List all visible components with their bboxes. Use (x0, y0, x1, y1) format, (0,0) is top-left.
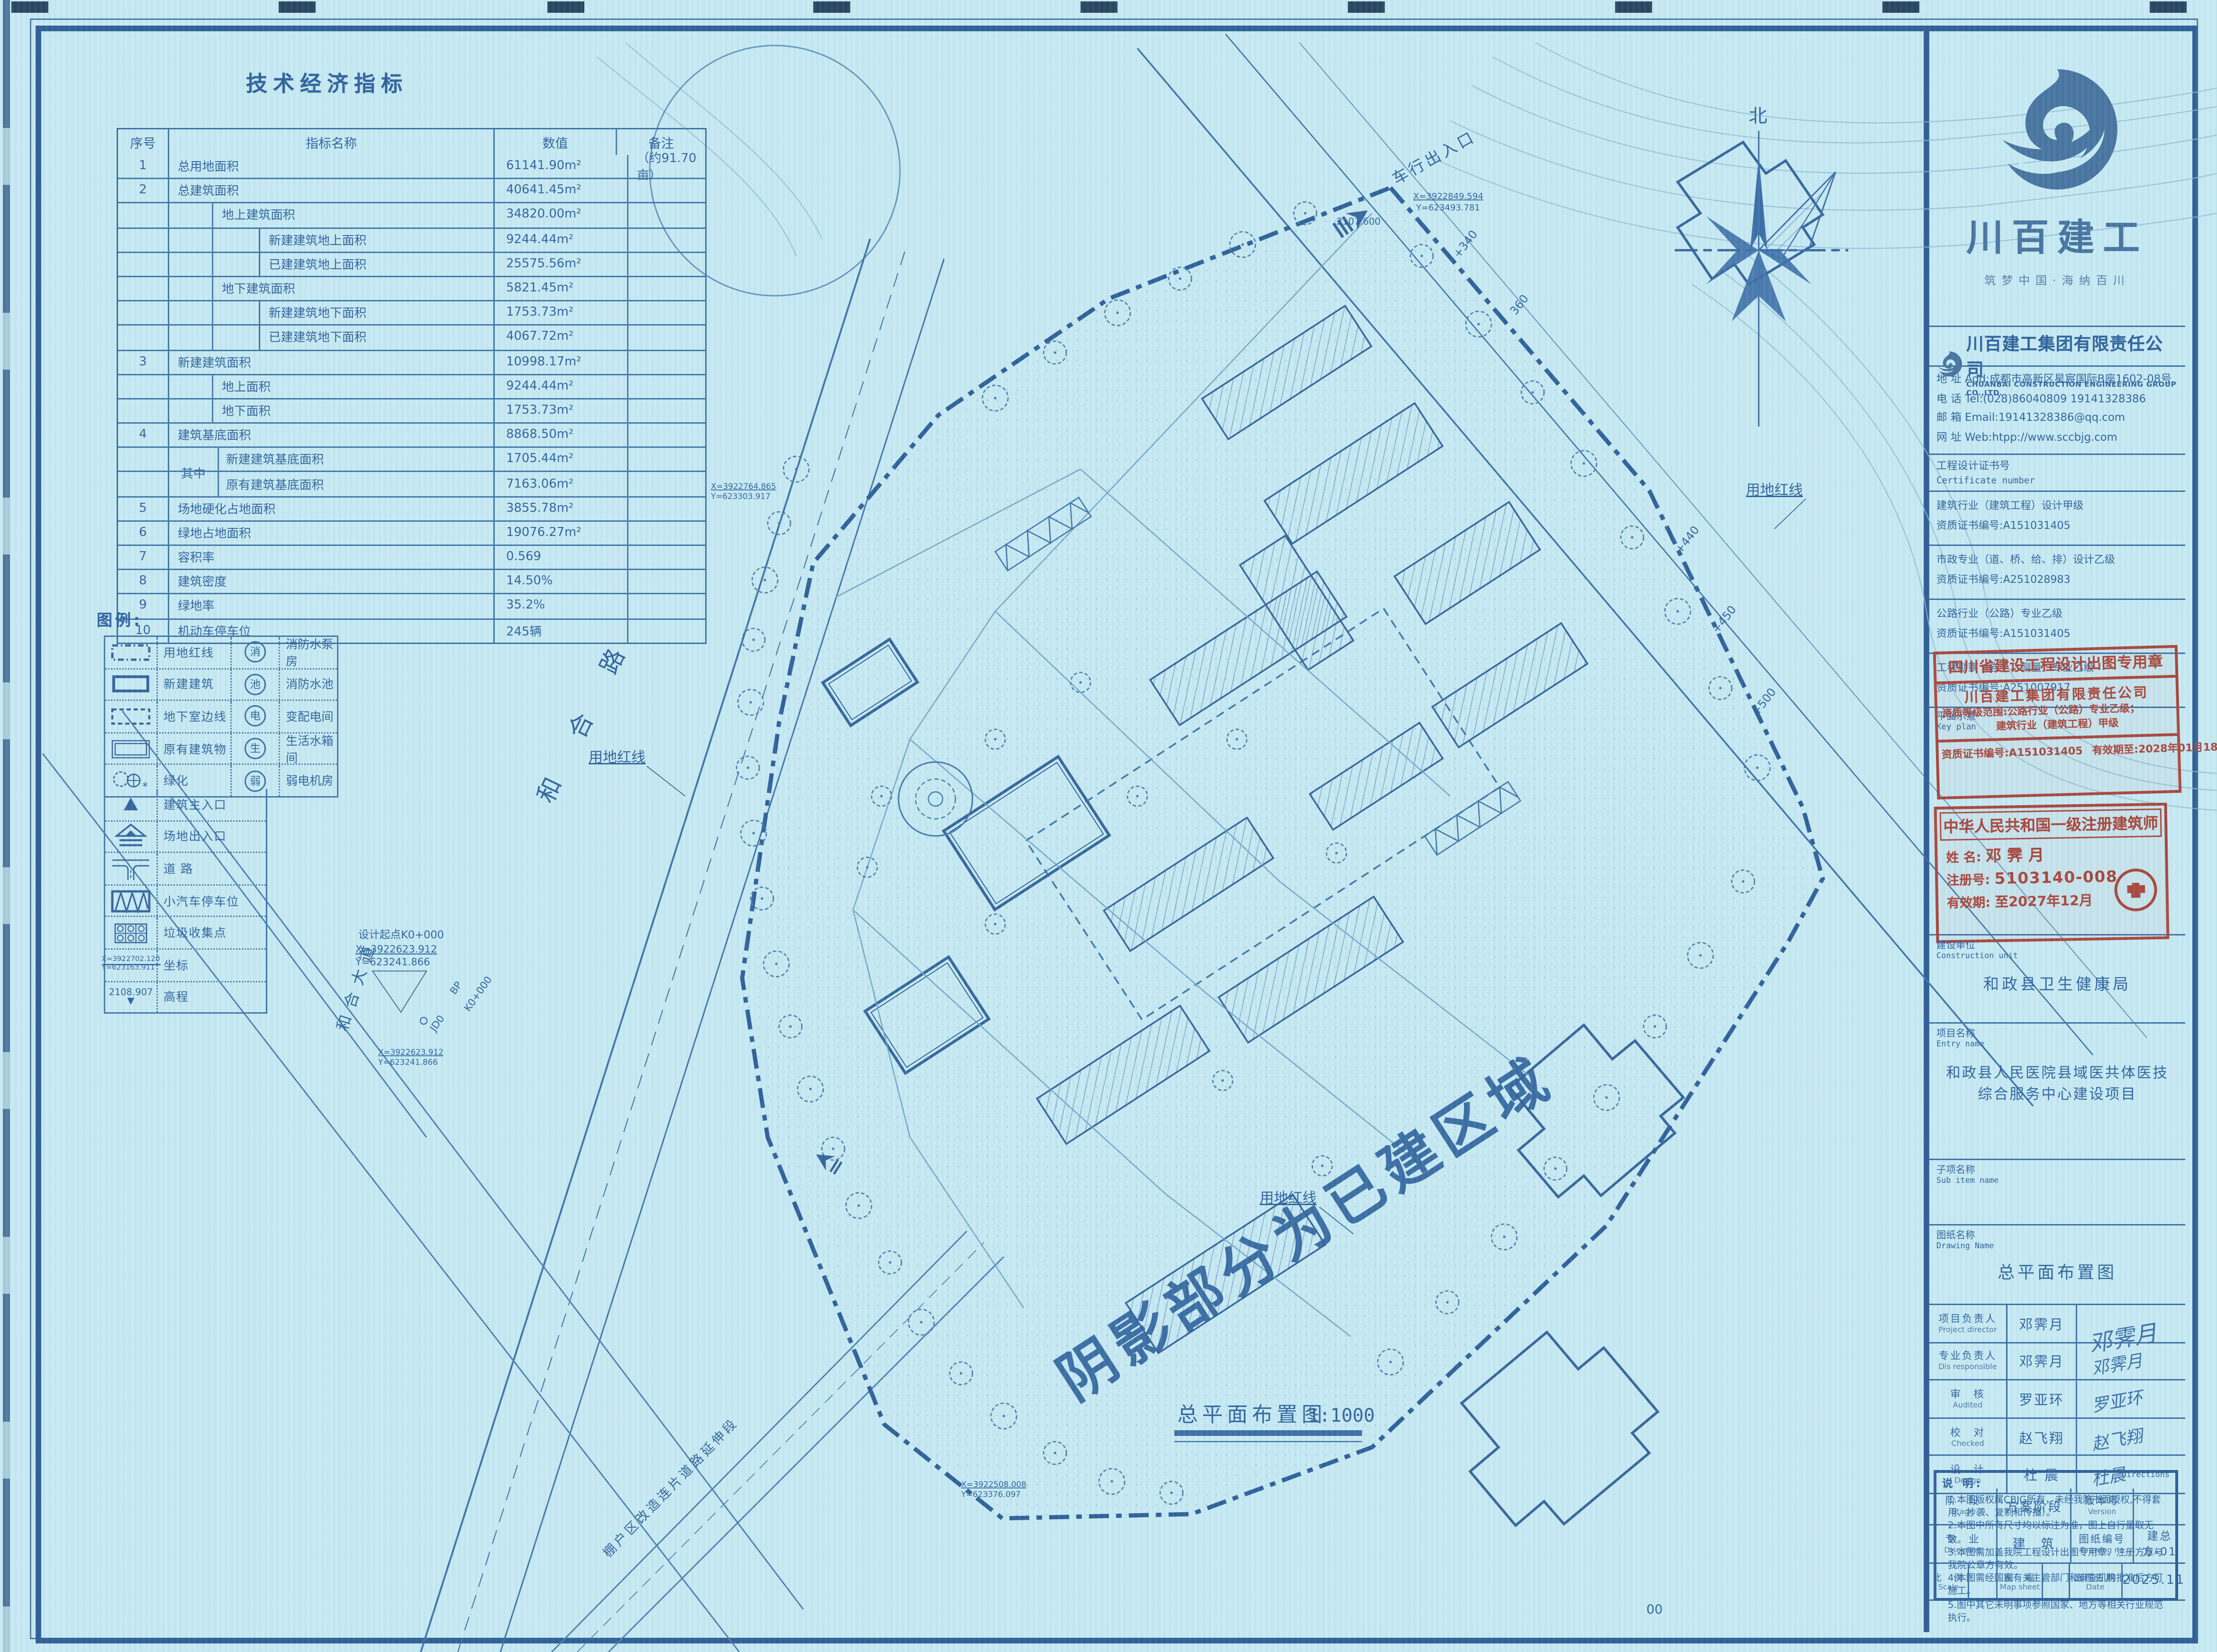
notes-section: Directions 说 明: 1.本图版权属CBJG所有，未经我院书面授权,不… (1934, 1470, 2178, 1601)
start-y: Y=623241.866 (355, 956, 430, 968)
legend-single-row-3: 道 路 (105, 852, 266, 884)
indicator-name: 绿地占地面积 (169, 525, 251, 542)
coord-example: X=3922702.120Y=623163.911 (102, 956, 160, 974)
tea-row-16: 6绿地占地面积19076.27m² (118, 520, 705, 545)
indicator-name: 总建筑面积 (169, 182, 239, 200)
indicator-value: 35.2% (495, 595, 628, 618)
indicator-name: 新建建筑面积 (169, 354, 251, 371)
certificate-section: 工程设计证书号 Certificate number (1929, 455, 2185, 492)
indicator-value: 14.50% (495, 571, 628, 594)
indicator-value: 9244.44m² (495, 375, 628, 398)
indicator-note (628, 497, 705, 520)
coord-bottom-y: Y=623376.097 (961, 1489, 1021, 1499)
legend-label: 场地出入口 (158, 821, 266, 852)
sig-name: 罗亚环 (2008, 1381, 2077, 1417)
drawing-title-block: 总平面布置图 1:1000 (1174, 1403, 1375, 1442)
legend-badge-circle: 电 (245, 706, 266, 727)
indicator-name: 建筑基底面积 (169, 427, 251, 444)
tea-row-9: 3新建建筑面积10998.17m² (118, 349, 705, 374)
tea-table-body: 1总用地面积61141.90m²（约91.70亩）2总建筑面积40641.45m… (118, 155, 705, 642)
legend-label: 高程 (158, 982, 266, 1013)
redline-label-left: 用地红线 (589, 749, 645, 766)
indicator-name: 新建建筑地上面积 (260, 231, 366, 248)
indicator-no (118, 253, 169, 276)
indicator-note (628, 595, 705, 618)
start-x: X=3922623.912 (355, 944, 437, 955)
certificate-label-en: Certificate number (1936, 473, 2178, 488)
indicator-note (628, 472, 705, 496)
project-name-section: 项目名称 Entry name 和政县人民医院县域医共体医技 综合服务中心建设项… (1929, 1024, 2185, 1160)
indicator-note (628, 253, 705, 276)
road-bottom-label: 棚户区改造连片道路延伸段 (600, 1415, 741, 1560)
col-header-no: 序号 (118, 129, 169, 155)
sig-script-cell: 赵飞翔 (2077, 1418, 2185, 1455)
tea-row-8: 已建建筑地下面积4067.72m² (118, 325, 705, 349)
existing-icon (109, 736, 152, 762)
coord-left-y: Y=623303.917 (710, 491, 771, 501)
tea-row-18: 8建筑密度14.50% (118, 569, 705, 594)
road-hehe-label: 和 合 路 (532, 626, 639, 807)
indicator-no: 3 (118, 351, 169, 374)
indicator-note (628, 204, 705, 227)
indicator-note (628, 301, 705, 325)
newbuild-icon (109, 672, 152, 697)
signature-row-3: 审 核Audited罗亚环罗亚环 (1929, 1381, 2185, 1419)
legend-label: 垃圾收集点 (158, 917, 266, 948)
indicator-note (628, 521, 705, 545)
company-header: 川百建工集团有限责任公司 CHUANBAI CONSTRUCTION ENGIN… (1929, 327, 2185, 367)
sig-role-cn: 校 对 (1929, 1425, 2006, 1440)
legend-label: 用地红线 (158, 637, 230, 668)
legend-single-row-4: 小汽车停车位 (105, 884, 266, 916)
col-header-name: 指标名称 (169, 129, 495, 155)
qualification-row-1: 建筑行业（建筑工程）设计甲级资质证书编号:A151031405 (1929, 492, 2185, 546)
sig-role-en: Dis responsible (1929, 1364, 2006, 1372)
legend-pair-row-1: 用地红线消消防水泵房 (105, 637, 337, 668)
legend-badge-label: 消防水泵房 (280, 637, 337, 668)
indicator-no (118, 399, 169, 423)
indicator-value: 1753.73m² (495, 301, 628, 325)
indicator-value: 9244.44m² (495, 228, 628, 252)
signature-table: 项目负责人Project director邓霁月专业负责人Dis respons… (1929, 1305, 2185, 1494)
entrance-elev: 2107.600 (1336, 216, 1381, 227)
stamp2-valid: 至2027年12月 (1995, 893, 2093, 911)
legend-label: 小汽车停车位 (158, 885, 266, 916)
start-x2: X=3922623.912 (378, 1047, 444, 1057)
indicator-no: 4 (118, 424, 169, 447)
tea-table-header: 序号 指标名称 数值 备注 (118, 129, 705, 155)
blueprint-sheet: 00 (0, 0, 2217, 1652)
indicator-name: 地上面积 (213, 378, 271, 395)
indicator-note (628, 571, 705, 594)
chainage-340: +340 (1451, 228, 1481, 261)
indicator-note (628, 448, 705, 472)
legend-label: 坐标 (158, 950, 266, 980)
start-label: 设计起点K0+000 (358, 929, 444, 941)
stamp2-name-label: 姓 名: (1946, 852, 1981, 866)
indicator-value: 245辆 (495, 619, 628, 643)
basement-icon (109, 704, 152, 729)
entrance-x: X=3922849.594 (1413, 191, 1483, 201)
indicator-no (118, 301, 169, 325)
qual-grade: 公路行业（公路）专业乙级 (1936, 604, 2178, 624)
site-entry-icon (109, 824, 152, 849)
indicator-no (118, 277, 169, 300)
legend-badge-label: 生活水箱间 (280, 733, 337, 764)
notes-list: 1.本图版权属CBJG所有，未经我院书面授权,不得套用、抄袭、复制和传播）。2.… (1948, 1494, 2170, 1625)
indicator-note (628, 375, 705, 398)
indicator-note (628, 228, 705, 252)
qual-cert-no: 资质证书编号:A151031405 (1936, 516, 2178, 536)
stamp2-valid-label: 有效期: (1947, 897, 1990, 912)
tea-row-3: 地上建筑面积34820.00m² (118, 202, 705, 227)
chainage-440: +440 (1672, 524, 1702, 556)
note-item-4: 4.本图需经国家有关主管部门和审查机构批准后方可施工。 (1948, 1573, 2170, 1599)
jd0-label: JD0 (427, 1013, 446, 1035)
indicator-value: 8868.50m² (495, 424, 628, 447)
tea-row-1: 1总用地面积61141.90m²（约91.70亩） (118, 155, 705, 178)
construction-unit-section: 建设单位 Construction unit 和政县卫生健康局 (1929, 935, 2185, 1024)
legend-badge-label: 消防水池 (280, 669, 337, 700)
indicator-no: 5 (118, 497, 169, 520)
sig-role-cn: 项目负责人 (1929, 1312, 2006, 1326)
architect-stamp: 中华人民共和国一级注册建筑师 姓 名: 邓霁月 注册号: 5103140-008… (1934, 803, 2170, 944)
tea-row-4: 新建建筑地上面积9244.44m² (118, 227, 705, 252)
indicator-name: 地上建筑面积 (213, 207, 295, 224)
title-underline-bar (1174, 1430, 1362, 1436)
legend-single-row-7: 2108.907▼高程 (105, 980, 266, 1013)
note-item-5: 5.图中其它未明事项参照国家、地方等相关行业规范执行。 (1948, 1599, 2170, 1625)
legend-title: 图例: (97, 608, 143, 631)
legend-pair-row-3: 地下室边线电变配电间 (105, 700, 337, 732)
stamp2-header: 中华人民共和国一级注册建筑师 (1940, 808, 2162, 841)
drawing-label-cn: 图纸名称 (1936, 1230, 2178, 1242)
qual-cert-no: 资质证书编号:A251028983 (1936, 570, 2178, 590)
indicator-name: 已建建筑地下面积 (260, 329, 366, 346)
indicator-value: 1753.73m² (495, 399, 628, 423)
legend-pair-row-4: 原有建筑物生生活水箱间 (105, 732, 337, 764)
indicator-name: 已建建筑地上面积 (260, 256, 366, 273)
indicator-name: 地下建筑面积 (213, 280, 295, 297)
indicator-note (628, 277, 705, 300)
indicator-value: 5821.45m² (495, 277, 628, 300)
k0-label: K0+000 (462, 974, 494, 1014)
indicator-no: 1 (118, 155, 169, 178)
project-name-line2: 综合服务中心建设项目 (1929, 1084, 2185, 1106)
tea-row-11: 地下面积1753.73m² (118, 398, 705, 423)
indicator-no (118, 472, 169, 496)
unit-label-en: Construction unit (1936, 952, 2178, 963)
indicator-value: 7163.06m² (495, 472, 628, 496)
handwritten-signature: 罗亚环 (2090, 1385, 2144, 1418)
indicator-name: 绿地率 (169, 598, 214, 615)
indicator-no: 6 (118, 521, 169, 545)
tea-row-10: 地上面积9244.44m² (118, 373, 705, 398)
entry-label-en: Entry name (1936, 1040, 2178, 1052)
bp-label: BP (447, 980, 464, 997)
indicator-value: 3855.78m² (495, 497, 628, 520)
tea-row-17: 7容积率0.569 (118, 545, 705, 569)
coord-bottom-x: X=3922508.008 (961, 1480, 1027, 1489)
unit-label-cn: 建设单位 (1936, 940, 2178, 952)
indicator-name: 总用地面积 (169, 158, 239, 175)
indicator-value: 1705.44m² (495, 448, 628, 472)
sig-script-cell: 罗亚环 (2077, 1381, 2185, 1417)
indicator-value: 61141.90m² (495, 155, 628, 178)
indicator-value: 25575.56m² (495, 253, 628, 276)
indicator-no: 8 (118, 571, 169, 594)
company-address: 地 址 Add:成都市高新区星宸国际B座1602-08号 (1936, 370, 2178, 389)
directions-label: Directions (2122, 1471, 2170, 1480)
legend-single-row-6: X=3922702.120Y=623163.911坐标 (105, 948, 266, 980)
legend-label: 新建建筑 (158, 669, 230, 700)
sub-label-en: Sub item name (1936, 1176, 2178, 1188)
indicator-note: （约91.70亩） (628, 155, 705, 178)
tea-row-19: 9绿地率35.2% (118, 593, 705, 618)
indicator-no: 2 (118, 180, 169, 203)
indicator-name: 容积率 (169, 549, 214, 566)
indicator-note (628, 180, 705, 203)
sig-role-en: Checked (1929, 1440, 2006, 1448)
logo-slogan: 筑梦中国·海纳百川 (1984, 272, 2130, 288)
tea-row-5: 已建建筑地上面积25575.56m² (118, 251, 705, 276)
tea-row-6: 地下建筑面积5821.45m² (118, 276, 705, 300)
legend-table-singles: 建筑主入口场地出入口道 路小汽车停车位垃圾收集点X=3922702.120Y=6… (104, 789, 267, 1014)
legend-pair-row-2: 新建建筑池消防水池 (105, 668, 337, 700)
stamp2-reg-label: 注册号: (1946, 874, 1990, 889)
logo-section: 川百建工 筑梦中国·海纳百川 (1929, 26, 2185, 327)
sig-role-en: Project director (1929, 1326, 2006, 1334)
indicator-note (628, 424, 705, 447)
stamp2-name: 邓霁月 (1986, 846, 2050, 865)
legend-label: 建筑主入口 (158, 789, 266, 820)
company-logo-icon (1992, 64, 2123, 194)
indicator-value: 10998.17m² (495, 351, 628, 374)
indicator-note (628, 351, 705, 374)
logo-name: 川百建工 (1966, 209, 2148, 261)
indicator-note (628, 399, 705, 423)
legend-label: 原有建筑物 (158, 733, 230, 764)
sub-item-section: 子项名称 Sub item name (1929, 1160, 2185, 1225)
main-entry-icon (109, 791, 152, 817)
indicator-value: 40641.45m² (495, 180, 628, 203)
qualification-row-2: 市政专业（道、桥、给、排）设计乙级资质证书编号:A251028983 (1929, 546, 2185, 600)
tea-row-2: 2总建筑面积40641.45m² (118, 178, 705, 203)
qual-cert-no: 资质证书编号:A151031405 (1936, 624, 2178, 644)
indicator-name: 新建建筑地下面积 (260, 305, 366, 322)
trash-icon (109, 920, 152, 946)
design-seal-stamp: 四川省建设工程设计出图专用章 川百建工集团有限责任公司 资质等级范围:公路行业（… (1933, 645, 2182, 799)
indicator-value: 0.569 (495, 546, 628, 569)
elevation-example: 2108.907▼ (109, 989, 153, 1006)
sig-role-cn: 专业负责人 (1929, 1350, 2006, 1364)
indicator-no (118, 228, 169, 252)
indicator-note (628, 619, 705, 643)
redline-label-right: 用地红线 (1746, 482, 1803, 499)
legend-single-row-1: 建筑主入口 (105, 789, 266, 820)
indicator-note (628, 326, 705, 349)
legend-badge-circle: 池 (245, 674, 266, 695)
stamp2-reg: 5103140-008 (1994, 868, 2117, 889)
indicator-name: 场地硬化占地面积 (169, 500, 275, 517)
drawing-scale: 1:1000 (1308, 1405, 1375, 1426)
legend-single-row-2: 场地出入口 (105, 820, 266, 852)
drawing-name-value: 总平面布置图 (1929, 1259, 2185, 1283)
drawing-name-section: 图纸名称 Drawing Name 总平面布置图 (1929, 1225, 2185, 1305)
tea-row-15: 5场地硬化占地面积3855.78m² (118, 496, 705, 520)
tea-table-title: 技术经济指标 (171, 68, 483, 98)
drawing-title: 总平面布置图 (1177, 1403, 1327, 1427)
indicator-no (118, 204, 169, 227)
sub-label-cn: 子项名称 (1936, 1164, 2178, 1176)
indicator-no (118, 326, 169, 349)
sig-name: 邓霁月 (2008, 1305, 2077, 1342)
sig-role-cn: 审 核 (1929, 1388, 2006, 1402)
redline-icon (109, 639, 152, 665)
entry-label-cn: 项目名称 (1936, 1028, 2178, 1040)
chainage-360: 360 (1508, 292, 1531, 317)
entrance-label: 车行出入口 (1389, 127, 1479, 188)
project-name-line1: 和政县人民医院县域医共体医技 (1929, 1063, 2185, 1084)
chainage-500: +500 (1749, 686, 1779, 718)
handwritten-signature: 赵飞翔 (2090, 1423, 2144, 1455)
certificate-label-cn: 工程设计证书号 (1936, 459, 2178, 473)
indicator-value: 34820.00m² (495, 204, 628, 227)
road-icon (109, 856, 152, 881)
col-header-value: 数值 (495, 129, 617, 155)
legend-badge-circle: 弱 (245, 770, 266, 791)
indicator-value: 19076.27m² (495, 521, 628, 545)
note-item-3: 3.本图需加盖我院工程设计出图专用章、注册方章与我院公章方有效。 (1948, 1546, 2170, 1572)
indicator-no (118, 448, 169, 472)
tea-row-12: 4建筑基底面积8868.50m² (118, 422, 705, 447)
company-tel: 电 话 Tel:(028)86040809 19141328386 (1936, 389, 2178, 408)
legend-table: 用地红线消消防水泵房新建建筑池消防水池地下室边线电变配电间原有建筑物生生活水箱间… (104, 635, 338, 798)
parking-icon (109, 888, 152, 914)
sig-name: 赵飞翔 (2008, 1418, 2077, 1455)
drawing-label-en: Drawing Name (1936, 1242, 2178, 1253)
north-compass: 北 (1675, 106, 1848, 427)
indicator-note (628, 546, 705, 569)
indicator-no: 7 (118, 546, 169, 569)
tea-table: 序号 指标名称 数值 备注 1总用地面积61141.90m²（约91.70亩）2… (117, 128, 707, 644)
indicator-name: 建筑密度 (169, 573, 227, 590)
legend-badge-label: 变配电间 (280, 701, 337, 732)
coord-left-x: X=3922764.865 (711, 481, 776, 491)
indicator-value: 4067.72m² (495, 326, 628, 349)
indicator-name: 地下面积 (213, 402, 271, 419)
qual-grade: 建筑行业（建筑工程）设计甲级 (1936, 496, 2178, 516)
north-label: 北 (1749, 106, 1767, 127)
group-label-qizhong: 其中 (169, 448, 219, 497)
legend-label: 道 路 (158, 853, 266, 884)
sig-role-en: Audited (1929, 1402, 2006, 1410)
note-item-1: 1.本图版权属CBJG所有，未经我院书面授权,不得套用、抄袭、复制和传播）。 (1948, 1494, 2170, 1520)
company-contacts: 地 址 Add:成都市高新区星宸国际B座1602-08号 电 话 Tel:(02… (1929, 367, 2185, 455)
company-web: 网 址 Web:htpp://www.sccbjg.com (1936, 427, 2178, 447)
titleblock: 川百建工 筑梦中国·海纳百川 川百建工集团有限责任公司 CHUANBAI CON… (1929, 26, 2185, 1632)
qual-grade: 市政专业（道、桥、给、排）设计乙级 (1936, 550, 2178, 570)
legend-label: 地下室边线 (158, 701, 230, 732)
note-item-2: 2.本图中所有尺寸均以标注为准，图上自行量取无效。 (1948, 1520, 2170, 1546)
start-y2: Y=623241.866 (378, 1057, 438, 1067)
stamp1-cert-no: 资质证书编号:A151031405 (1941, 744, 2083, 761)
legend-badge-circle: 生 (245, 738, 266, 759)
construction-unit-value: 和政县卫生健康局 (1929, 972, 2185, 995)
sig-name: 邓霁月 (2008, 1343, 2077, 1380)
signature-row-4: 校 对Checked赵飞翔赵飞翔 (1929, 1418, 2185, 1456)
indicator-no (118, 375, 169, 398)
company-email: 邮 箱 Email:19141328386@qq.com (1936, 408, 2178, 427)
entrance-y: Y=623493.781 (1416, 203, 1480, 213)
tea-row-7: 新建建筑地下面积1753.73m² (118, 300, 705, 325)
legend-single-row-5: 垃圾收集点 (105, 916, 266, 948)
legend-badge-label: 弱电机房 (280, 765, 337, 796)
legend-badge-circle: 消 (245, 642, 266, 663)
